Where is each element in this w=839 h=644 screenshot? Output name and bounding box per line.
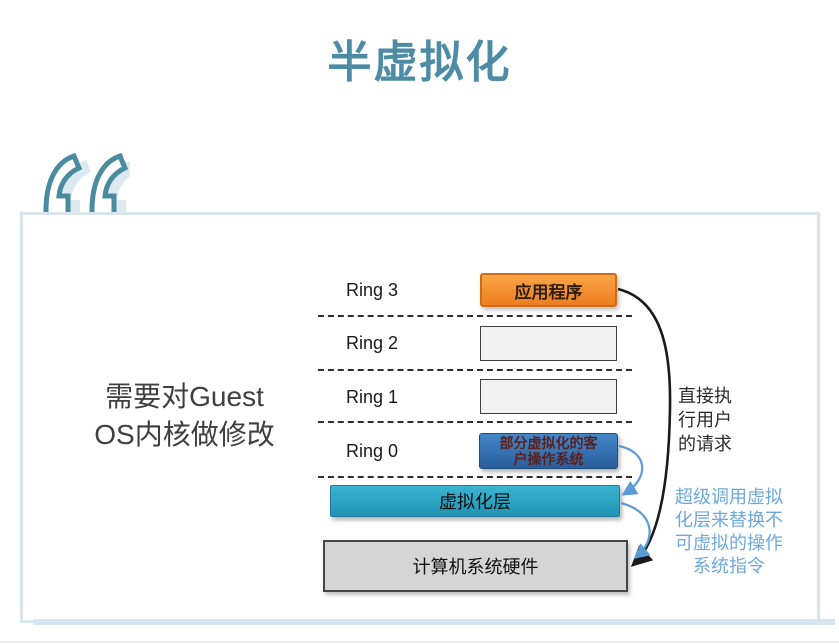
ring-separator bbox=[318, 476, 632, 478]
ring-label-2: Ring 2 bbox=[346, 332, 426, 354]
virtualization-layer-label: 虚拟化层 bbox=[439, 488, 511, 514]
guest-os-note-line: 需要对Guest bbox=[82, 378, 287, 416]
virtualization-layer-box: 虚拟化层 bbox=[330, 485, 620, 517]
application-box-label: 应用程序 bbox=[515, 278, 583, 303]
ring-label-1: Ring 1 bbox=[346, 386, 426, 408]
hypercall-line: 可虚拟的操作 bbox=[655, 532, 803, 555]
empty-box-ring2 bbox=[480, 326, 617, 361]
empty-box-ring1 bbox=[480, 379, 617, 414]
ring-separator bbox=[318, 315, 632, 317]
hardware-box-label: 计算机系统硬件 bbox=[413, 553, 539, 579]
page-title: 半虚拟化 bbox=[0, 26, 839, 90]
page-bottom-edge bbox=[0, 641, 839, 643]
ring-separator bbox=[318, 369, 632, 371]
annotation-hypercall: 超级调用虚拟 化层来替换不 可虚拟的操作 系统指令 bbox=[655, 486, 803, 578]
ring-separator bbox=[318, 421, 632, 423]
guest-os-note: 需要对Guest OS内核做修改 bbox=[82, 378, 287, 454]
guest-os-box-line: 户操作系统 bbox=[500, 451, 598, 467]
ring-label-0: Ring 0 bbox=[346, 440, 426, 462]
direct-execution-line: 的请求 bbox=[674, 432, 736, 456]
hypercall-line: 系统指令 bbox=[655, 555, 803, 578]
direct-execution-line: 直接执 bbox=[674, 384, 736, 408]
guest-os-box: 部分虚拟化的客 户操作系统 bbox=[479, 433, 618, 469]
direct-execution-line: 行用户 bbox=[674, 408, 736, 432]
guest-os-note-line: OS内核做修改 bbox=[82, 416, 287, 454]
frame-bottom-accent bbox=[33, 619, 835, 625]
application-box: 应用程序 bbox=[480, 273, 617, 307]
guest-os-box-line: 部分虚拟化的客 bbox=[500, 435, 598, 451]
hypercall-line: 化层来替换不 bbox=[655, 509, 803, 532]
hypercall-line: 超级调用虚拟 bbox=[655, 486, 803, 509]
annotation-direct-execution: 直接执 行用户 的请求 bbox=[674, 384, 736, 456]
hardware-box: 计算机系统硬件 bbox=[323, 540, 628, 592]
ring-label-3: Ring 3 bbox=[346, 279, 426, 301]
